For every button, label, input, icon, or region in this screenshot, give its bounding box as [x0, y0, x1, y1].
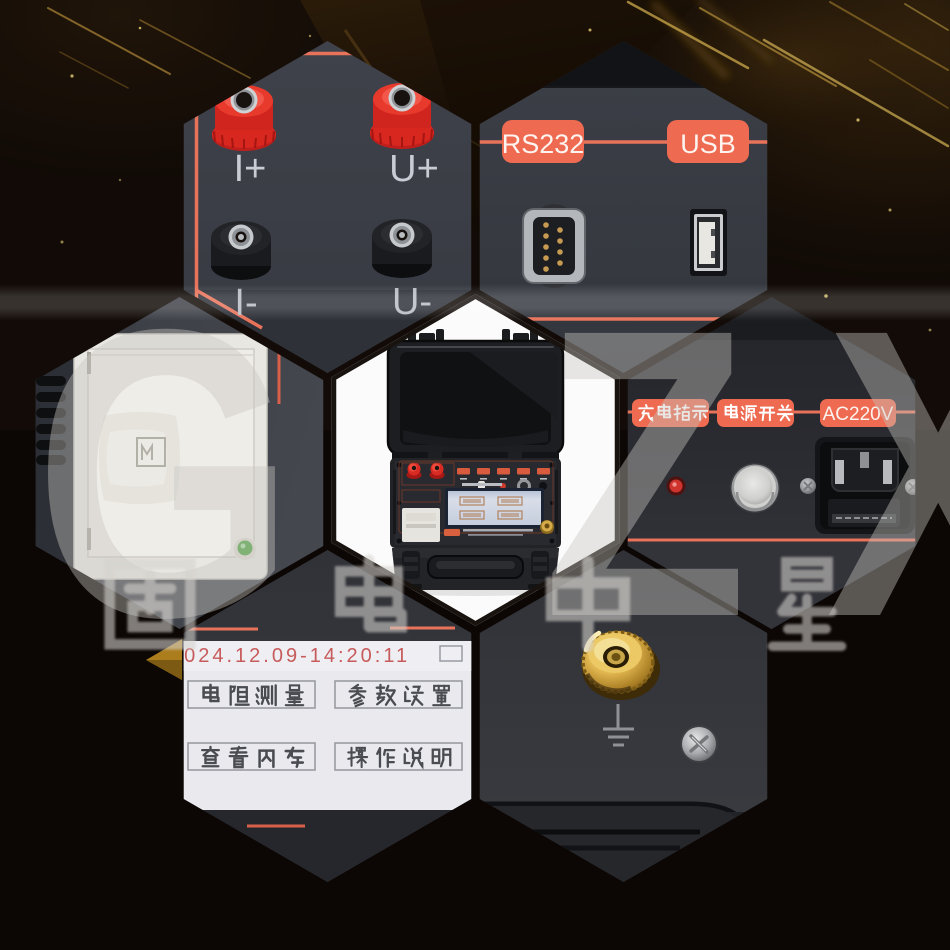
svg-text:USB: USB	[680, 129, 736, 159]
svg-text:I+: I+	[234, 148, 267, 190]
svg-text:Z: Z	[542, 245, 747, 702]
svg-text:G: G	[34, 245, 296, 702]
svg-text:X: X	[826, 245, 950, 702]
svg-text:U+: U+	[389, 148, 439, 190]
svg-text:RS232: RS232	[502, 129, 585, 159]
